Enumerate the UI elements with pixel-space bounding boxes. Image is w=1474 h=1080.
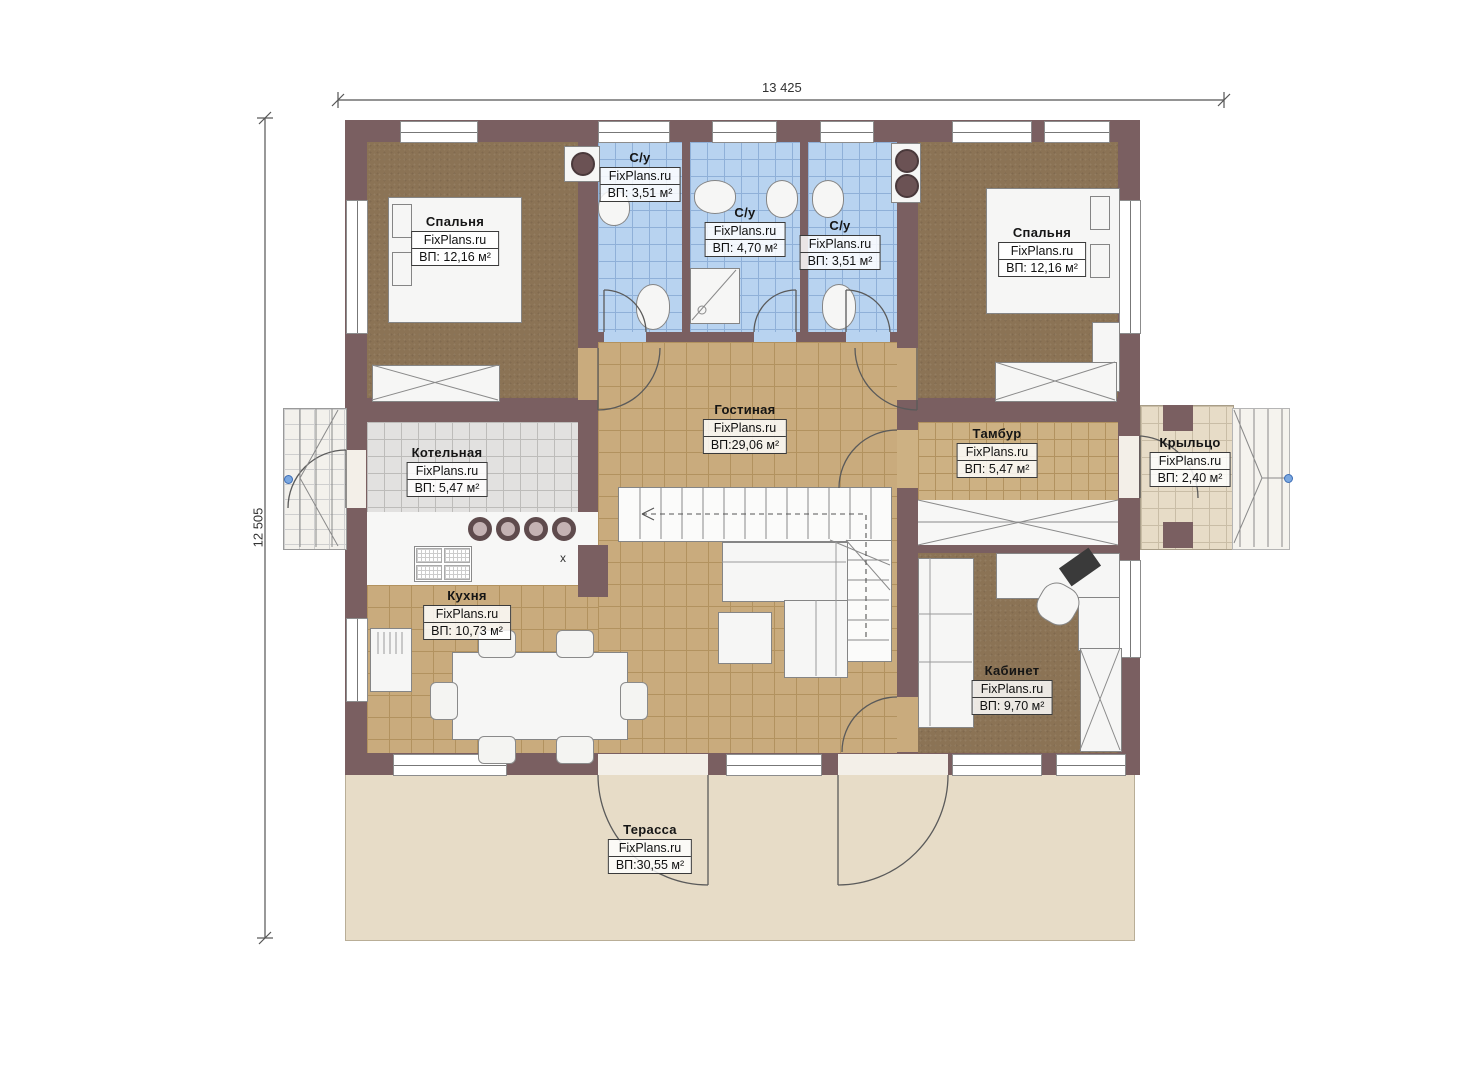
- window: [820, 121, 874, 143]
- sofa-seat: [784, 600, 848, 678]
- dimension-left-label: 12 505: [250, 508, 265, 548]
- pillow: [1090, 196, 1110, 230]
- sink: [812, 180, 844, 218]
- washer-drum-icon: [895, 149, 919, 173]
- desk-return: [1078, 597, 1120, 651]
- terrace-door-gap: [838, 754, 948, 775]
- window: [346, 618, 368, 702]
- bedroom-right-door-gap: [897, 348, 918, 400]
- boiler-exterior-door-gap: [346, 450, 366, 508]
- room-label-bedroom-left: Спальня FixPlans.ru ВП: 12,16 м²: [411, 214, 499, 266]
- stove-burner-icon: [468, 517, 492, 541]
- toilet: [636, 284, 670, 330]
- room-label-bathroom-right: С/у FixPlans.ru ВП: 3,51 м²: [800, 218, 881, 270]
- door-handle-marker: [1284, 474, 1293, 483]
- coffee-table: [718, 612, 772, 664]
- hob-icon: [414, 546, 472, 582]
- chair: [620, 682, 648, 720]
- entry-porch-steps: [1232, 408, 1290, 550]
- porch-post-bottom: [1163, 522, 1193, 548]
- floor-plan-canvas: 13 425 12 505: [0, 0, 1474, 1080]
- office-door-gap: [897, 697, 918, 752]
- vestibule-living-door-gap: [897, 430, 918, 488]
- window: [726, 754, 822, 776]
- toilet: [822, 284, 856, 330]
- room-label-living-room: Гостиная FixPlans.ru ВП:29,06 м²: [703, 402, 787, 454]
- room-label-bathroom-left: С/у FixPlans.ru ВП: 3,51 м²: [600, 150, 681, 202]
- wall-column: [578, 545, 608, 597]
- kitchen-sink-marker: x: [560, 551, 566, 565]
- window: [712, 121, 777, 143]
- vestibule-closet: [918, 500, 1118, 545]
- bathroom-left-door-gap: [604, 332, 646, 342]
- bathroom-right-door-gap: [846, 332, 890, 342]
- sofa-chaise: [722, 542, 848, 602]
- pillow: [392, 204, 412, 238]
- washer-drum-icon: [571, 152, 595, 176]
- room-label-office: Кабинет FixPlans.ru ВП: 9,70 м²: [972, 663, 1053, 715]
- chair: [478, 736, 516, 764]
- office-sofa: [918, 558, 974, 728]
- shower-tray: [690, 268, 740, 324]
- vestibule-exterior-door-gap: [1119, 436, 1139, 498]
- pillow: [1090, 244, 1110, 278]
- window: [1056, 754, 1126, 776]
- bathroom-center-door-gap: [754, 332, 796, 342]
- door-handle-marker: [284, 475, 293, 484]
- window: [400, 121, 478, 143]
- room-label-bathroom-center: С/у FixPlans.ru ВП: 4,70 м²: [705, 205, 786, 257]
- window: [346, 200, 368, 334]
- office-wardrobe: [1080, 648, 1122, 752]
- terrace-deck: [345, 775, 1135, 941]
- dining-table: [452, 652, 628, 740]
- pillow: [392, 252, 412, 286]
- stove-burner-icon: [524, 517, 548, 541]
- window: [1119, 200, 1141, 334]
- window: [952, 754, 1042, 776]
- stove-burner-icon: [552, 517, 576, 541]
- wardrobe-left: [372, 365, 500, 402]
- window: [1119, 560, 1141, 658]
- room-label-porch: Крыльцо FixPlans.ru ВП: 2,40 м²: [1150, 435, 1231, 487]
- room-label-kitchen: Кухня FixPlans.ru ВП: 10,73 м²: [423, 588, 511, 640]
- staircase-lower-run: [846, 540, 892, 662]
- room-label-boiler-room: Котельная FixPlans.ru ВП: 5,47 м²: [407, 445, 488, 497]
- chair: [556, 630, 594, 658]
- bedroom-left-door-gap: [578, 348, 598, 400]
- window: [598, 121, 670, 143]
- dryer-drum-icon: [895, 174, 919, 198]
- stove-burner-icon: [496, 517, 520, 541]
- dimension-top-label: 13 425: [762, 80, 802, 95]
- staircase-upper-run: [618, 487, 892, 542]
- window: [952, 121, 1032, 143]
- fridge: [370, 628, 412, 692]
- porch-post-top: [1163, 405, 1193, 431]
- room-label-bedroom-right: Спальня FixPlans.ru ВП: 12,16 м²: [998, 225, 1086, 277]
- terrace-door-gap: [598, 754, 708, 775]
- window: [1044, 121, 1110, 143]
- room-label-terrace: Терасса FixPlans.ru ВП:30,55 м²: [608, 822, 692, 874]
- chair: [556, 736, 594, 764]
- wardrobe-right: [995, 362, 1117, 402]
- chair: [430, 682, 458, 720]
- room-label-vestibule: Тамбур FixPlans.ru ВП: 5,47 м²: [957, 426, 1038, 478]
